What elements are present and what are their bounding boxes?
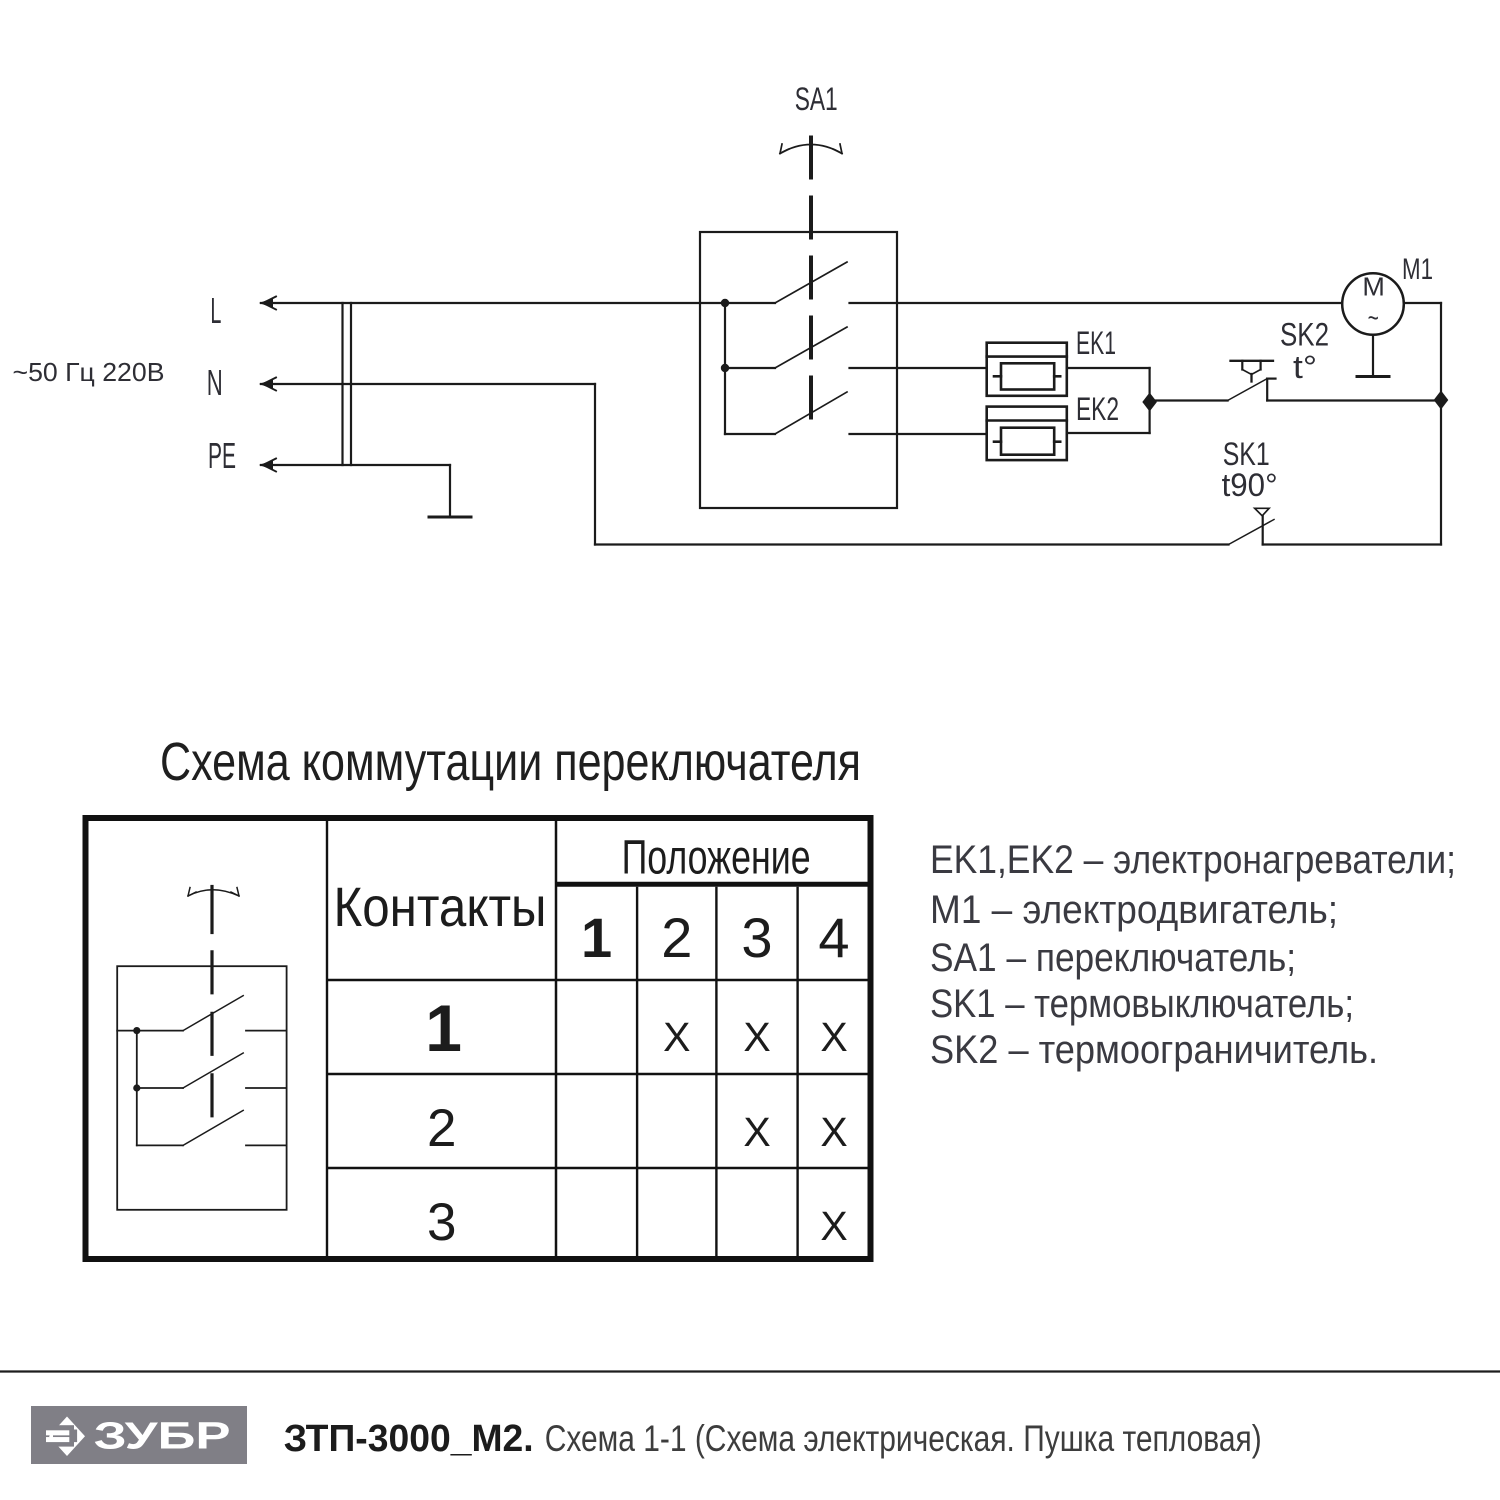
svg-text:2: 2 xyxy=(661,906,692,969)
svg-text:SA1 – переключатель;: SA1 – переключатель; xyxy=(930,936,1296,980)
svg-text:X: X xyxy=(820,1109,847,1155)
svg-text:3: 3 xyxy=(427,1193,456,1252)
svg-text:4: 4 xyxy=(818,906,849,969)
svg-text:ЗТП-3000_М2.: ЗТП-3000_М2. xyxy=(284,1418,534,1460)
svg-text:SK1 – термовыключатель;: SK1 – термовыключатель; xyxy=(930,982,1354,1026)
svg-text:t90°: t90° xyxy=(1222,467,1278,503)
svg-text:M1: M1 xyxy=(1402,253,1433,286)
svg-text:X: X xyxy=(820,1014,847,1060)
svg-text:Схема 1-1 (Схема электрическая: Схема 1-1 (Схема электрическая. Пушка те… xyxy=(545,1418,1262,1459)
svg-text:X: X xyxy=(743,1109,770,1155)
svg-text:SA1: SA1 xyxy=(795,81,838,117)
svg-text:M: M xyxy=(1362,272,1385,302)
svg-text:Положение: Положение xyxy=(622,832,811,885)
svg-text:EK1: EK1 xyxy=(1076,325,1116,361)
svg-text:3: 3 xyxy=(741,906,772,969)
svg-text:X: X xyxy=(820,1203,847,1249)
svg-text:Контакты: Контакты xyxy=(334,875,547,938)
svg-text:ЗУБР: ЗУБР xyxy=(94,1416,231,1458)
svg-text:~: ~ xyxy=(1368,303,1379,333)
svg-text:N: N xyxy=(207,362,223,403)
svg-text:X: X xyxy=(663,1014,690,1060)
svg-text:2: 2 xyxy=(427,1099,456,1158)
svg-text:EK2: EK2 xyxy=(1076,391,1119,427)
svg-text:t°: t° xyxy=(1293,349,1317,385)
svg-text:~50 Гц 220В: ~50 Гц 220В xyxy=(13,357,165,387)
svg-text:1: 1 xyxy=(581,906,612,969)
svg-text:M1 – электродвигатель;: M1 – электродвигатель; xyxy=(930,888,1338,932)
svg-text:Схема коммутации переключателя: Схема коммутации переключателя xyxy=(160,732,861,792)
svg-text:EK1,EK2 – электронагреватели;: EK1,EK2 – электронагреватели; xyxy=(930,838,1456,882)
svg-text:SK2 – термоограничитель.: SK2 – термоограничитель. xyxy=(930,1028,1378,1072)
svg-text:PE: PE xyxy=(208,435,236,476)
svg-text:X: X xyxy=(743,1014,770,1060)
svg-text:SK2: SK2 xyxy=(1280,317,1329,353)
svg-text:1: 1 xyxy=(425,991,462,1065)
svg-text:L: L xyxy=(210,290,221,331)
